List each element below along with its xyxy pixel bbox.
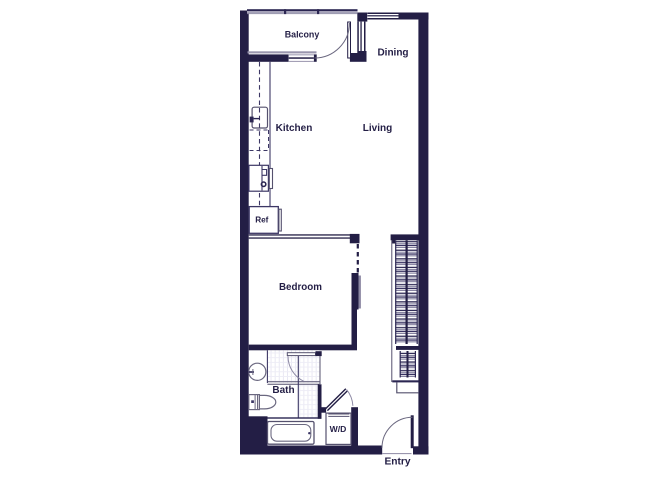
svg-text:Dining: Dining bbox=[377, 47, 408, 58]
svg-text:Ref: Ref bbox=[255, 216, 268, 225]
svg-text:W/D: W/D bbox=[330, 424, 347, 434]
svg-text:Kitchen: Kitchen bbox=[276, 123, 313, 134]
svg-text:Bedroom: Bedroom bbox=[279, 282, 322, 293]
svg-text:Balcony: Balcony bbox=[285, 30, 320, 40]
svg-text:Bath: Bath bbox=[272, 385, 294, 396]
svg-text:Living: Living bbox=[363, 123, 392, 134]
svg-text:Entry: Entry bbox=[384, 457, 410, 468]
